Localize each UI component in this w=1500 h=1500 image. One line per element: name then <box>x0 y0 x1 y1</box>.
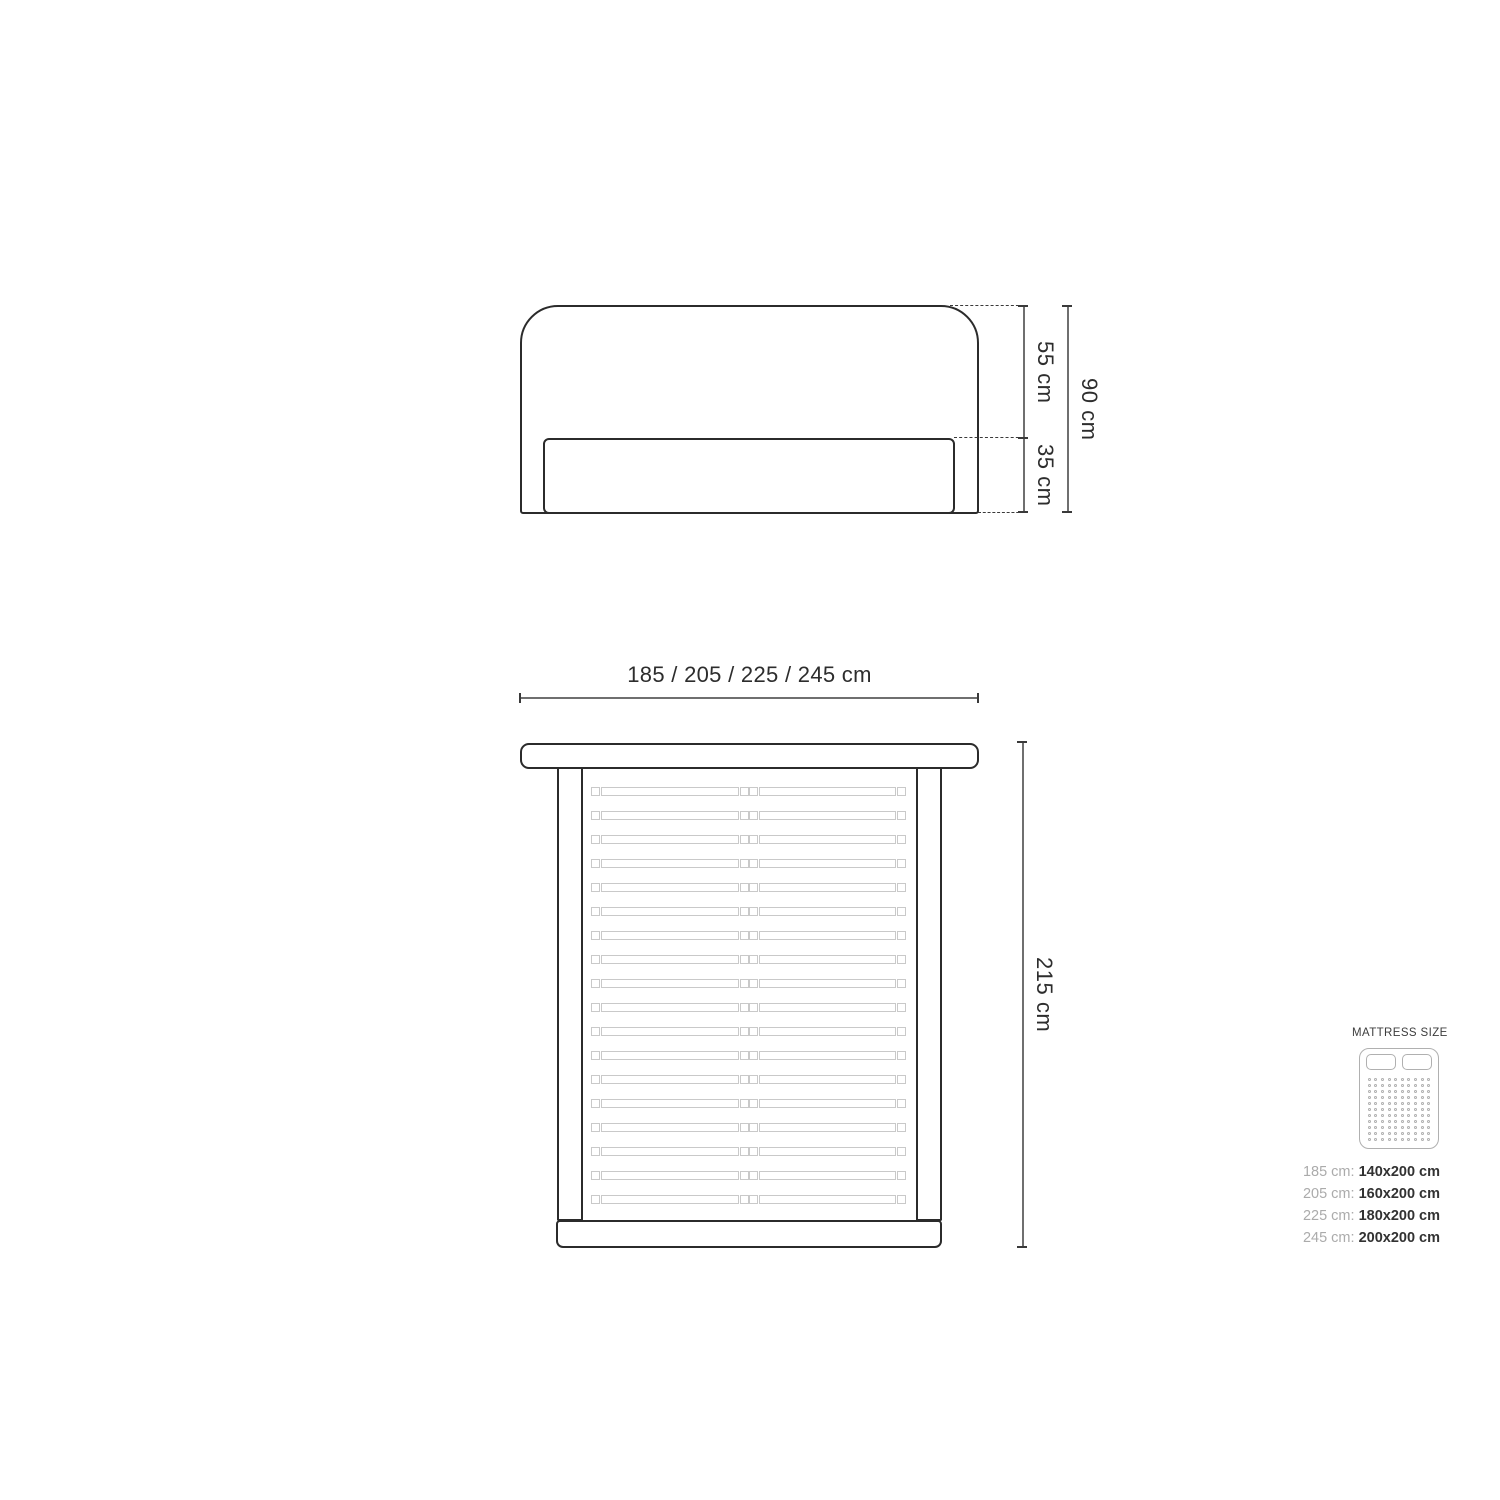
slat-end-cap <box>897 787 906 796</box>
mattress-dot <box>1374 1120 1377 1123</box>
slat-center-cap <box>740 1003 749 1012</box>
slat-bar <box>601 1099 739 1108</box>
slat-center-cap <box>749 1099 758 1108</box>
dimension-label-55cm: 55 cm <box>1032 306 1058 438</box>
slat-bar <box>601 835 739 844</box>
slat-end-cap <box>591 955 600 964</box>
slat-bar <box>601 1195 739 1204</box>
slat-center-cap <box>749 883 758 892</box>
mattress-size-value: 160x200 cm <box>1359 1186 1440 1202</box>
mattress-dot <box>1388 1090 1391 1093</box>
mattress-dot <box>1374 1084 1377 1087</box>
mattress-dot <box>1388 1132 1391 1135</box>
slat-bar <box>759 1195 897 1204</box>
mattress-dot <box>1381 1114 1384 1117</box>
mattress-dot <box>1427 1108 1430 1111</box>
mattress-dot <box>1414 1096 1417 1099</box>
mattress-dot <box>1388 1120 1391 1123</box>
slat-bar <box>601 1003 739 1012</box>
mattress-dot <box>1368 1084 1371 1087</box>
mattress-dot <box>1401 1078 1404 1081</box>
slat <box>591 1099 906 1108</box>
mattress-dot <box>1394 1096 1397 1099</box>
mattress-dot <box>1407 1138 1410 1141</box>
mattress-dot <box>1421 1138 1424 1141</box>
mattress-dot <box>1394 1078 1397 1081</box>
slat <box>591 1003 906 1012</box>
slat-bar <box>601 787 739 796</box>
mattress-dot <box>1421 1126 1424 1129</box>
footboard-outline <box>556 1220 942 1248</box>
mattress-size-row: 205 cm: 160x200 cm <box>1290 1183 1440 1205</box>
bed-dimension-diagram: 55 cm 35 cm 90 cm 185 / 205 / 225 / 245 … <box>0 0 1500 1500</box>
mattress-dot <box>1368 1138 1371 1141</box>
mattress-icon <box>1359 1048 1439 1149</box>
slat-bar <box>759 955 897 964</box>
slat-end-cap <box>591 1147 600 1156</box>
mattress-dot <box>1394 1114 1397 1117</box>
slat <box>591 883 906 892</box>
mattress-dot <box>1407 1090 1410 1093</box>
slat-center-cap <box>740 1051 749 1060</box>
extension-dash-middle <box>954 437 1024 438</box>
mattress-dot <box>1421 1114 1424 1117</box>
mattress-size-value: 140x200 cm <box>1359 1164 1440 1180</box>
tick <box>1018 511 1028 513</box>
slat-bar <box>759 859 897 868</box>
mattress-dot <box>1407 1120 1410 1123</box>
tick <box>1017 1246 1027 1248</box>
mattress-dot <box>1368 1102 1371 1105</box>
mattress-dot <box>1401 1084 1404 1087</box>
slat-end-cap <box>897 883 906 892</box>
mattress-dot <box>1374 1090 1377 1093</box>
slat-end-cap <box>591 859 600 868</box>
mattress-dot <box>1368 1132 1371 1135</box>
slat-end-cap <box>897 1051 906 1060</box>
slat-bar <box>759 907 897 916</box>
slat-center-cap <box>740 931 749 940</box>
mattress-dot <box>1421 1078 1424 1081</box>
tick <box>519 693 521 703</box>
mattress-dot <box>1381 1084 1384 1087</box>
mattress-dot <box>1381 1090 1384 1093</box>
slat-end-cap <box>591 811 600 820</box>
mattress-dot <box>1407 1126 1410 1129</box>
slat-end-cap <box>897 1027 906 1036</box>
pillow-icon <box>1366 1054 1396 1070</box>
mattress-dot <box>1368 1096 1371 1099</box>
slat-center-cap <box>749 1123 758 1132</box>
extension-dash-top <box>950 305 1024 306</box>
mattress-dot <box>1407 1078 1410 1081</box>
slat-end-cap <box>897 811 906 820</box>
mattress-dot <box>1394 1084 1397 1087</box>
mattress-dot <box>1394 1102 1397 1105</box>
slat-end-cap <box>897 1171 906 1180</box>
mattress-dot <box>1421 1096 1424 1099</box>
slat-end-cap <box>897 931 906 940</box>
slat-end-cap <box>897 1147 906 1156</box>
slat-bar <box>759 1123 897 1132</box>
mattress-dot <box>1414 1090 1417 1093</box>
slat-center-cap <box>749 1147 758 1156</box>
mattress-dot <box>1427 1114 1430 1117</box>
slat-center-cap <box>749 931 758 940</box>
slat-center-cap <box>740 1123 749 1132</box>
slat-bar <box>601 1075 739 1084</box>
slat <box>591 1195 906 1204</box>
mattress-dot <box>1414 1114 1417 1117</box>
slat-center-cap <box>740 1099 749 1108</box>
slat-end-cap <box>591 907 600 916</box>
slat-end-cap <box>897 1195 906 1204</box>
mattress-dot <box>1381 1108 1384 1111</box>
mattress-dot <box>1388 1138 1391 1141</box>
slat <box>591 1123 906 1132</box>
mattress-dot <box>1401 1090 1404 1093</box>
slat-end-cap <box>591 1027 600 1036</box>
mattress-dot <box>1374 1132 1377 1135</box>
slat-bar <box>759 1171 897 1180</box>
mattress-dot <box>1407 1132 1410 1135</box>
mattress-dot <box>1414 1102 1417 1105</box>
mattress-dot <box>1381 1132 1384 1135</box>
slat <box>591 859 906 868</box>
mattress-dot <box>1368 1126 1371 1129</box>
mattress-dot <box>1421 1102 1424 1105</box>
slat-center-cap <box>749 1171 758 1180</box>
dimension-line-215 <box>1022 742 1024 1247</box>
tick <box>1017 741 1027 743</box>
slat-end-cap <box>897 1075 906 1084</box>
slat-end-cap <box>591 787 600 796</box>
mattress-dot <box>1381 1126 1384 1129</box>
slat-center-cap <box>740 811 749 820</box>
slat-bar <box>601 1027 739 1036</box>
slat-bar <box>601 979 739 988</box>
slat-center-cap <box>740 859 749 868</box>
mattress-dot-grid <box>1366 1076 1432 1142</box>
slat-center-cap <box>749 907 758 916</box>
mattress-dot <box>1421 1084 1424 1087</box>
slat-bar <box>759 1147 897 1156</box>
slat-center-cap <box>740 1027 749 1036</box>
slat-end-cap <box>897 835 906 844</box>
slat-center-cap <box>740 979 749 988</box>
slat-bar <box>759 835 897 844</box>
slat-bar <box>601 811 739 820</box>
mattress-dot <box>1401 1132 1404 1135</box>
tick <box>977 693 979 703</box>
mattress-dot <box>1421 1120 1424 1123</box>
mattress-dot <box>1421 1132 1424 1135</box>
mattress-dot <box>1401 1120 1404 1123</box>
mattress-dot <box>1381 1138 1384 1141</box>
mattress-dot <box>1374 1114 1377 1117</box>
mattress-dot <box>1427 1078 1430 1081</box>
mattress-dot <box>1407 1114 1410 1117</box>
slat-end-cap <box>591 1195 600 1204</box>
mattress-dot <box>1394 1090 1397 1093</box>
side-rail-left <box>557 767 583 1221</box>
mattress-size-row: 245 cm: 200x200 cm <box>1290 1227 1440 1249</box>
mattress-dot <box>1427 1096 1430 1099</box>
slat-center-cap <box>740 1075 749 1084</box>
mattress-dot <box>1407 1084 1410 1087</box>
bed-width-label: 185 cm: <box>1303 1164 1359 1180</box>
slat-end-cap <box>897 1099 906 1108</box>
slat <box>591 787 906 796</box>
slat <box>591 811 906 820</box>
slat-center-cap <box>749 787 758 796</box>
slat-bar <box>759 811 897 820</box>
mattress-dot <box>1421 1090 1424 1093</box>
mattress-size-row: 185 cm: 140x200 cm <box>1290 1161 1440 1183</box>
mattress-dot <box>1427 1090 1430 1093</box>
mattress-dot <box>1388 1126 1391 1129</box>
slat <box>591 1171 906 1180</box>
slat <box>591 835 906 844</box>
mattress-dot <box>1421 1108 1424 1111</box>
dimension-line-90 <box>1067 306 1069 513</box>
slat-center-cap <box>749 1003 758 1012</box>
slat-center-cap <box>740 1147 749 1156</box>
side-rail-right <box>916 767 942 1221</box>
pillow-row <box>1366 1054 1432 1070</box>
slat-end-cap <box>591 1171 600 1180</box>
mattress-dot <box>1407 1102 1410 1105</box>
bed-width-label: 245 cm: <box>1303 1230 1359 1246</box>
mattress-dot <box>1368 1120 1371 1123</box>
slat-bar <box>601 1051 739 1060</box>
slat-end-cap <box>591 1099 600 1108</box>
slat-center-cap <box>749 835 758 844</box>
slat-center-cap <box>740 1171 749 1180</box>
slat-center-cap <box>749 1051 758 1060</box>
slat-bar <box>601 1123 739 1132</box>
mattress-dot <box>1394 1108 1397 1111</box>
slat-center-cap <box>740 787 749 796</box>
slat-end-cap <box>897 1003 906 1012</box>
mattress-dot <box>1388 1102 1391 1105</box>
slat-bar <box>759 787 897 796</box>
mattress-dot <box>1401 1126 1404 1129</box>
slat-end-cap <box>591 1075 600 1084</box>
mattress-dot <box>1381 1120 1384 1123</box>
mattress-dot <box>1407 1096 1410 1099</box>
mattress-dot <box>1381 1096 1384 1099</box>
tick <box>1062 511 1072 513</box>
mattress-dot <box>1414 1126 1417 1129</box>
slat-center-cap <box>740 955 749 964</box>
mattress-dot <box>1388 1084 1391 1087</box>
slat-bar <box>601 1147 739 1156</box>
tick <box>1018 437 1028 439</box>
slat-center-cap <box>740 907 749 916</box>
dimension-label-90cm: 90 cm <box>1076 306 1102 513</box>
mattress-dot <box>1381 1102 1384 1105</box>
slat-bar <box>759 883 897 892</box>
mattress-dot <box>1401 1114 1404 1117</box>
slat-end-cap <box>591 1003 600 1012</box>
mattress-dot <box>1414 1120 1417 1123</box>
slat <box>591 1051 906 1060</box>
mattress-dot <box>1374 1096 1377 1099</box>
tick <box>1018 305 1028 307</box>
mattress-dot <box>1427 1132 1430 1135</box>
mattress-dot <box>1401 1108 1404 1111</box>
slat <box>591 1027 906 1036</box>
slat-bar <box>601 1171 739 1180</box>
slat-bar <box>601 955 739 964</box>
mattress-dot <box>1374 1138 1377 1141</box>
slat-bar <box>759 1003 897 1012</box>
dimension-line-width <box>520 697 979 699</box>
slat-center-cap <box>740 1195 749 1204</box>
mattress-dot <box>1401 1096 1404 1099</box>
slat <box>591 979 906 988</box>
slat-end-cap <box>591 883 600 892</box>
mattress-dot <box>1394 1138 1397 1141</box>
mattress-dot <box>1374 1108 1377 1111</box>
dimension-label-215cm: 215 cm <box>1031 742 1057 1247</box>
mattress-dot <box>1427 1138 1430 1141</box>
mattress-dot <box>1427 1084 1430 1087</box>
mattress-dot <box>1414 1078 1417 1081</box>
mattress-dot <box>1388 1096 1391 1099</box>
mattress-dot <box>1368 1108 1371 1111</box>
slat-center-cap <box>749 1027 758 1036</box>
bed-width-label: 225 cm: <box>1303 1208 1359 1224</box>
mattress-dot <box>1388 1078 1391 1081</box>
slat-bar <box>759 1099 897 1108</box>
mattress-size-list: 185 cm: 140x200 cm205 cm: 160x200 cm225 … <box>1290 1161 1440 1249</box>
bed-base-front-outline <box>543 438 955 514</box>
mattress-dot <box>1401 1102 1404 1105</box>
slat-bar <box>759 1027 897 1036</box>
mattress-dot <box>1374 1102 1377 1105</box>
slat-end-cap <box>591 835 600 844</box>
slat-center-cap <box>740 883 749 892</box>
mattress-dot <box>1427 1102 1430 1105</box>
slat <box>591 931 906 940</box>
slat-bar <box>759 931 897 940</box>
slat-end-cap <box>591 1051 600 1060</box>
slat-bar <box>601 883 739 892</box>
mattress-dot <box>1368 1090 1371 1093</box>
headboard-top-outline <box>520 743 979 769</box>
slat-end-cap <box>897 955 906 964</box>
dimension-line-55-35 <box>1023 306 1025 513</box>
mattress-dot <box>1414 1132 1417 1135</box>
slat-center-cap <box>749 1195 758 1204</box>
slat-bar <box>759 979 897 988</box>
mattress-dot <box>1394 1132 1397 1135</box>
tick <box>1062 305 1072 307</box>
slat-end-cap <box>591 931 600 940</box>
slat-end-cap <box>897 1123 906 1132</box>
mattress-size-value: 180x200 cm <box>1359 1208 1440 1224</box>
bed-width-label: 205 cm: <box>1303 1186 1359 1202</box>
mattress-dot <box>1427 1126 1430 1129</box>
slat-bar <box>601 907 739 916</box>
slat-end-cap <box>897 979 906 988</box>
mattress-dot <box>1414 1108 1417 1111</box>
slat-center-cap <box>749 1075 758 1084</box>
slat <box>591 1147 906 1156</box>
mattress-dot <box>1388 1114 1391 1117</box>
slat-end-cap <box>591 979 600 988</box>
slat-center-cap <box>740 835 749 844</box>
slat-center-cap <box>749 955 758 964</box>
mattress-dot <box>1381 1078 1384 1081</box>
legend-title: MATTRESS SIZE <box>1352 1027 1446 1039</box>
slat-center-cap <box>749 811 758 820</box>
slat <box>591 907 906 916</box>
slat-bar <box>759 1051 897 1060</box>
mattress-dot <box>1388 1108 1391 1111</box>
slat-end-cap <box>897 907 906 916</box>
dimension-label-35cm: 35 cm <box>1032 438 1058 513</box>
slat-end-cap <box>591 1123 600 1132</box>
slat <box>591 1075 906 1084</box>
mattress-dot <box>1368 1114 1371 1117</box>
mattress-size-value: 200x200 cm <box>1359 1230 1440 1246</box>
mattress-dot <box>1414 1138 1417 1141</box>
pillow-icon <box>1402 1054 1432 1070</box>
mattress-dot <box>1414 1084 1417 1087</box>
mattress-dot <box>1427 1120 1430 1123</box>
slat-center-cap <box>749 979 758 988</box>
mattress-dot <box>1374 1078 1377 1081</box>
mattress-size-row: 225 cm: 180x200 cm <box>1290 1205 1440 1227</box>
mattress-dot <box>1394 1126 1397 1129</box>
slat-bar <box>601 931 739 940</box>
slat <box>591 955 906 964</box>
slat-area <box>591 787 906 1204</box>
mattress-dot <box>1368 1078 1371 1081</box>
mattress-dot <box>1374 1126 1377 1129</box>
slat-bar <box>601 859 739 868</box>
mattress-dot <box>1401 1138 1404 1141</box>
slat-end-cap <box>897 859 906 868</box>
slat-bar <box>759 1075 897 1084</box>
mattress-dot <box>1394 1120 1397 1123</box>
dimension-label-width: 185 / 205 / 225 / 245 cm <box>520 662 979 688</box>
mattress-dot <box>1407 1108 1410 1111</box>
slat-center-cap <box>749 859 758 868</box>
